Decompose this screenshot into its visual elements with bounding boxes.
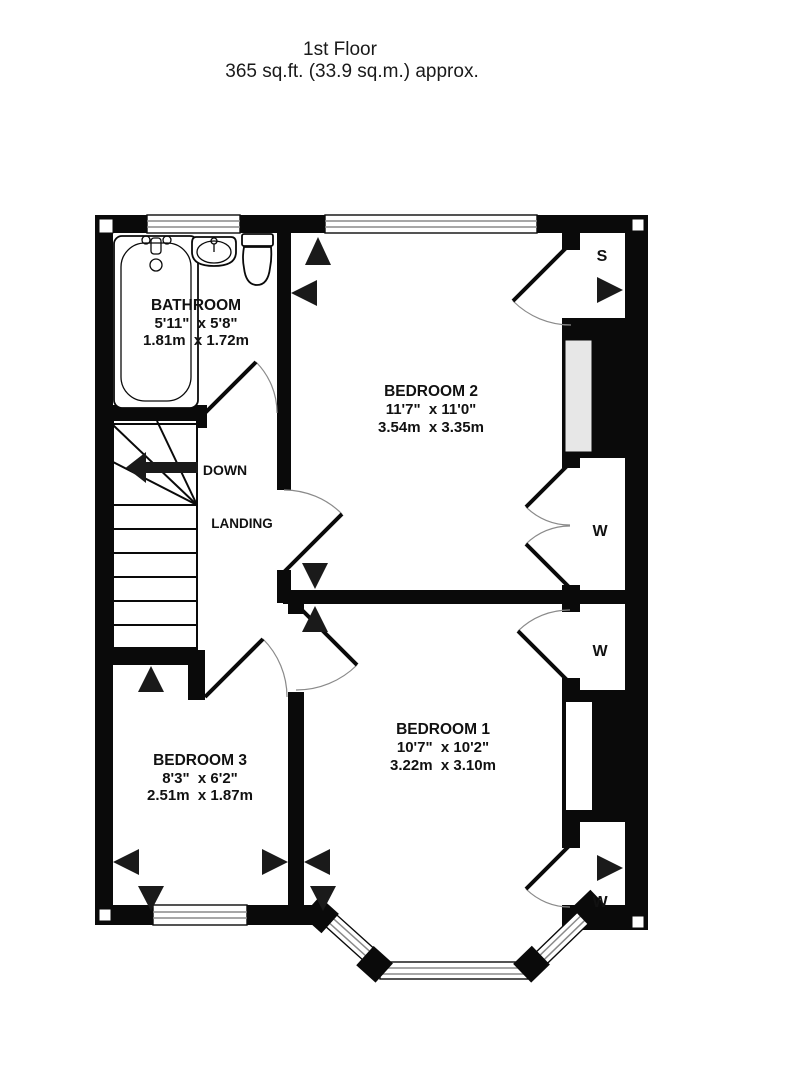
door-leaf-wardrobe1-top bbox=[526, 463, 570, 507]
chimney-recess-1 bbox=[565, 340, 592, 452]
room-size-metric-bedroom2: 3.54m x 3.35m bbox=[378, 419, 484, 436]
jamb-storage-bottom bbox=[562, 318, 627, 333]
wall-bathroom-right bbox=[277, 233, 291, 490]
door-arc-wardrobe1-top bbox=[526, 507, 570, 525]
door-arc-wardrobe2 bbox=[518, 610, 570, 631]
dimension-arrow-up-bedroom3 bbox=[138, 666, 164, 692]
wall-bed3-door-jamb bbox=[188, 650, 205, 700]
outer-wall-left bbox=[95, 215, 113, 925]
outer-wall-right bbox=[625, 215, 648, 930]
dimension-arrow-up-bedroom1-door bbox=[302, 606, 328, 632]
floor-area: 365 sq.ft. (33.9 sq.m.) approx. bbox=[225, 61, 478, 82]
room-size-imperial-bedroom2: 11'7" x 11'0" bbox=[386, 401, 477, 418]
room-size-metric-bedroom3: 2.51m x 1.87m bbox=[147, 787, 253, 804]
floorplan-svg: 1st Floor 365 sq.ft. (33.9 sq.m.) approx… bbox=[0, 0, 791, 1080]
wall-bed2-bed1 bbox=[283, 590, 648, 604]
storage-label: S bbox=[597, 248, 608, 265]
corner-notch-top-right bbox=[632, 219, 644, 231]
dimension-arrow-left-bedroom1 bbox=[304, 849, 330, 875]
dimension-arrow-right-wardrobe3 bbox=[597, 855, 623, 881]
dimension-arrow-up-bedroom2 bbox=[305, 237, 331, 265]
room-label-bathroom: BATHROOM bbox=[151, 297, 241, 314]
room-size-imperial-bedroom1: 10'7" x 10'2" bbox=[397, 739, 489, 756]
door-leaf-wardrobe2 bbox=[518, 631, 570, 683]
door-arc-bedroom1 bbox=[296, 665, 357, 690]
door-leaf-bedroom3 bbox=[205, 639, 263, 697]
room-size-imperial-bedroom3: 8'3" x 6'2" bbox=[162, 770, 238, 787]
room-label-bedroom1: BEDROOM 1 bbox=[396, 721, 490, 738]
corner-notch-top-left bbox=[99, 219, 113, 233]
door-arc-bedroom2 bbox=[284, 490, 342, 514]
floorplan-page: 1st Floor 365 sq.ft. (33.9 sq.m.) approx… bbox=[0, 0, 791, 1080]
dimension-arrow-left-bedroom2 bbox=[291, 280, 317, 306]
stairs bbox=[113, 420, 198, 650]
wall-bed3-bed1 bbox=[288, 692, 304, 912]
dimension-arrow-down-landing bbox=[302, 563, 328, 589]
door-leaf-storage bbox=[513, 243, 571, 301]
doors bbox=[205, 243, 571, 907]
labels: 1st Floor 365 sq.ft. (33.9 sq.m.) approx… bbox=[143, 39, 608, 911]
wardrobe-label-3: W bbox=[592, 894, 608, 911]
dimension-arrow-right-bedroom3 bbox=[262, 849, 288, 875]
room-label-bedroom3: BEDROOM 3 bbox=[153, 752, 247, 769]
corner-notch-bottom-left bbox=[99, 909, 111, 921]
door-arc-bedroom3 bbox=[263, 639, 287, 697]
bay-window-bottom bbox=[380, 962, 528, 979]
room-size-imperial-bathroom: 5'11" x 5'8" bbox=[154, 315, 237, 332]
door-leaf-wardrobe1-bottom bbox=[526, 544, 570, 588]
toilet bbox=[242, 234, 273, 285]
jamb-wardrobe3-top bbox=[562, 822, 580, 848]
sink bbox=[192, 237, 236, 266]
room-label-landing: LANDING bbox=[211, 516, 273, 531]
stairs-down-label: DOWN bbox=[203, 462, 247, 478]
door-leaf-bedroom1 bbox=[296, 604, 357, 665]
door-arc-wardrobe1-bottom bbox=[526, 526, 570, 544]
room-size-metric-bathroom: 1.81m x 1.72m bbox=[143, 332, 249, 349]
window-bedroom2-top bbox=[325, 215, 537, 233]
dimension-arrow-right-storage bbox=[597, 277, 623, 303]
room-label-bedroom2: BEDROOM 2 bbox=[384, 383, 478, 400]
wardrobe-label-1: W bbox=[592, 523, 608, 540]
door-arc-wardrobe3 bbox=[526, 889, 570, 907]
door-arc-bathroom bbox=[256, 362, 277, 413]
window-bedroom3-bottom bbox=[153, 905, 247, 925]
dimension-arrow-left-bedroom3 bbox=[113, 849, 139, 875]
floor-title: 1st Floor bbox=[303, 39, 378, 60]
chimney-recess-2 bbox=[566, 702, 592, 810]
door-leaf-wardrobe3 bbox=[526, 845, 570, 889]
room-size-metric-bedroom1: 3.22m x 3.10m bbox=[390, 757, 496, 774]
corner-notch-bottom-right bbox=[632, 916, 644, 928]
window-bathroom-top bbox=[147, 215, 240, 233]
outer-wall-top-mid bbox=[240, 215, 325, 233]
wardrobe-label-2: W bbox=[592, 643, 608, 660]
door-leaf-bathroom bbox=[205, 362, 256, 413]
